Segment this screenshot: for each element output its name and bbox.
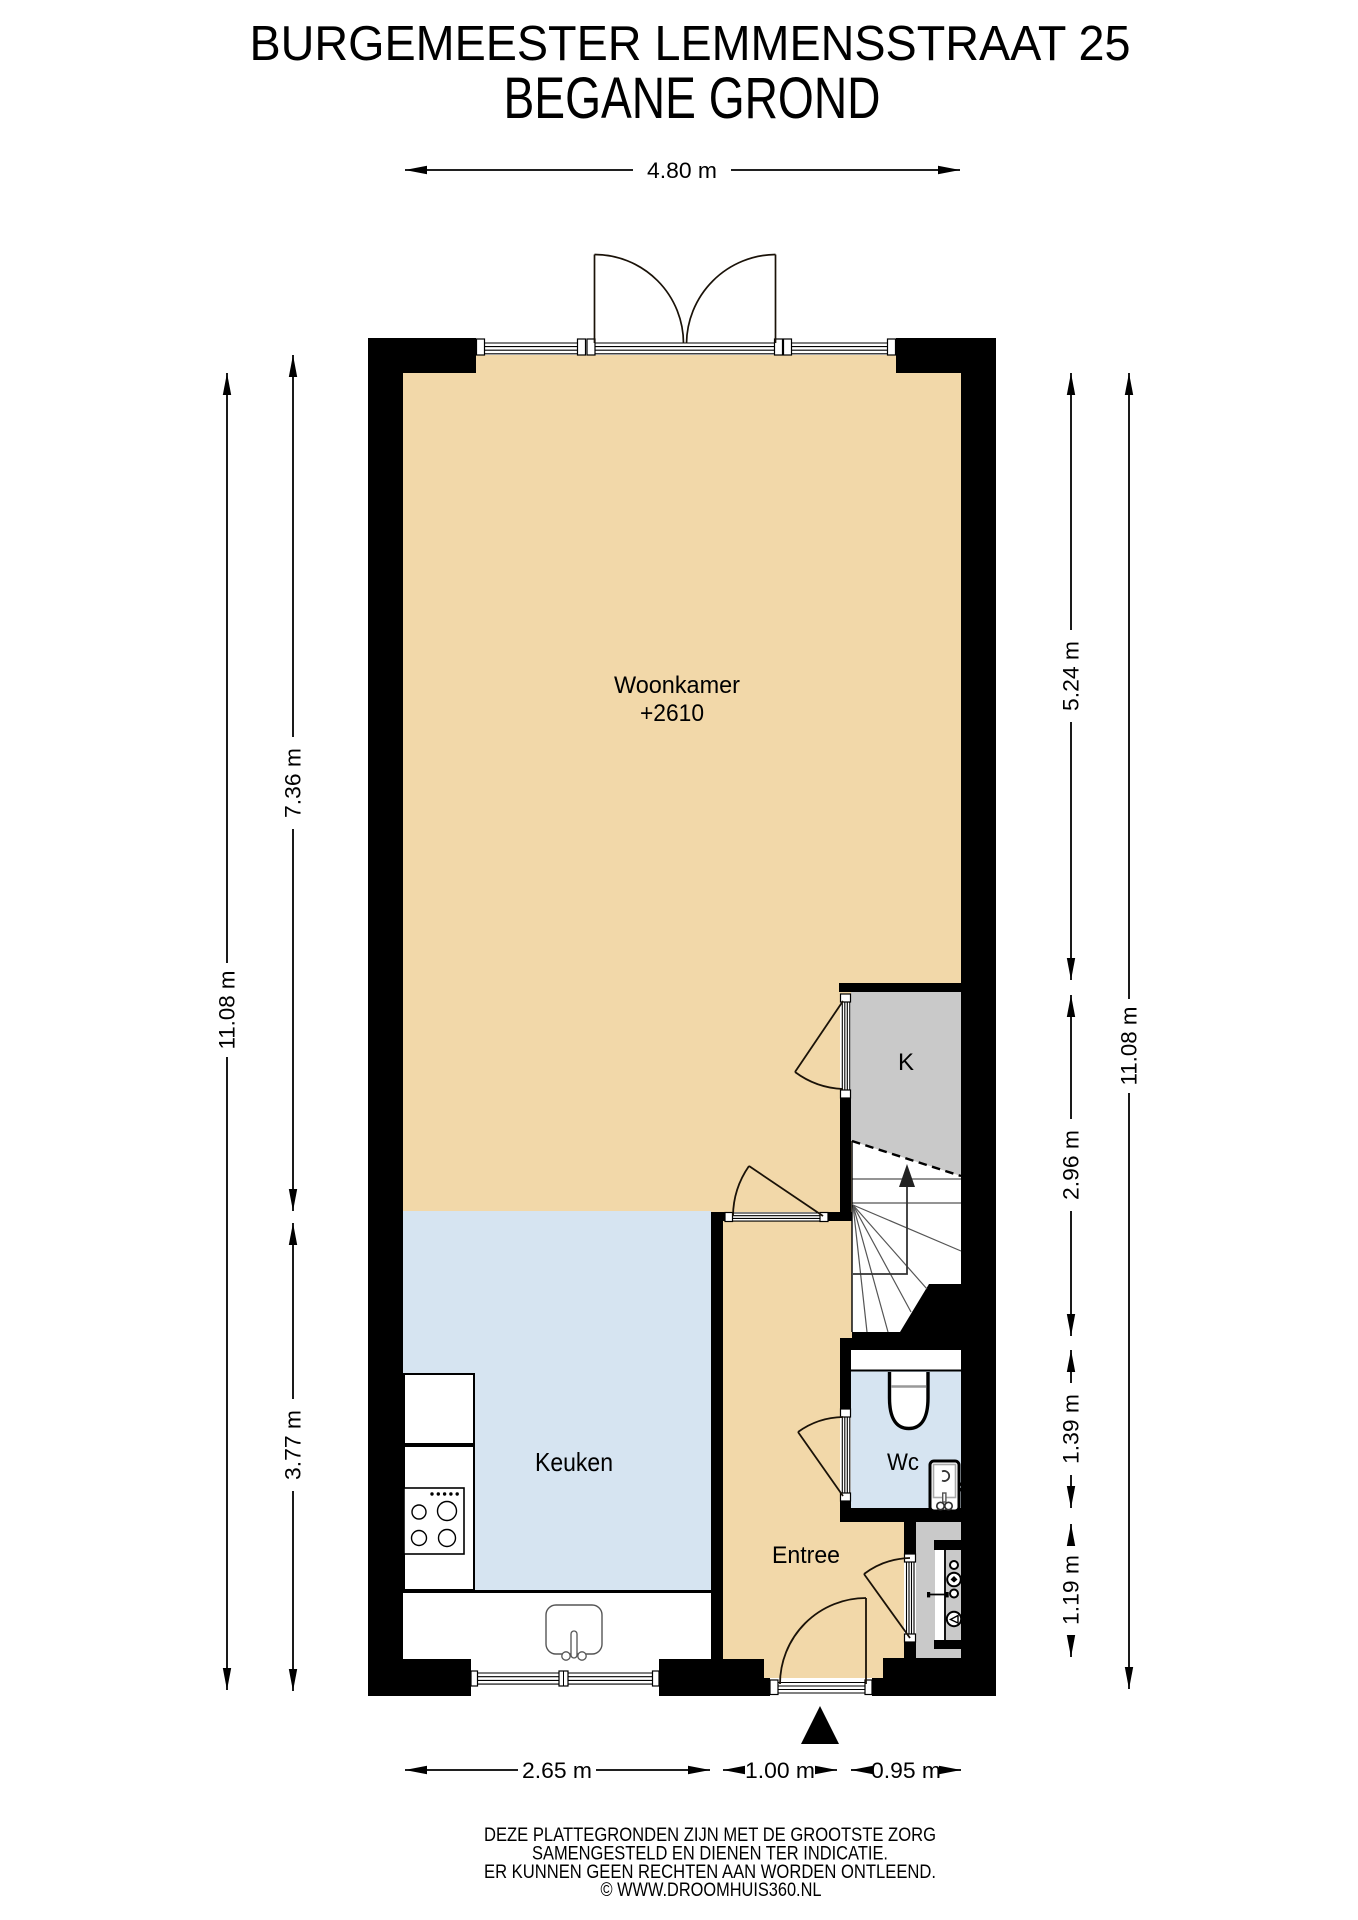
svg-text:BEGANE GROND: BEGANE GROND (504, 66, 881, 131)
svg-text:3.77 m: 3.77 m (281, 1410, 306, 1480)
svg-text:4.80 m: 4.80 m (647, 158, 717, 183)
svg-text:Keuken: Keuken (535, 1447, 613, 1477)
svg-text:11.08 m: 11.08 m (1117, 1007, 1142, 1086)
svg-text:2.96 m: 2.96 m (1059, 1130, 1084, 1200)
svg-text:1.00 m: 1.00 m (745, 1758, 815, 1783)
svg-text:BURGEMEESTER LEMMENSSTRAAT 25: BURGEMEESTER LEMMENSSTRAAT 25 (250, 17, 1131, 71)
svg-text:Wc: Wc (887, 1449, 919, 1476)
svg-text:1.39 m: 1.39 m (1059, 1394, 1084, 1464)
svg-text:0.95 m: 0.95 m (871, 1758, 941, 1783)
svg-text:2.65 m: 2.65 m (522, 1758, 592, 1783)
svg-text:5.24 m: 5.24 m (1059, 641, 1084, 711)
svg-text:11.08 m: 11.08 m (215, 971, 240, 1050)
svg-text:© WWW.DROOMHUIS360.NL: © WWW.DROOMHUIS360.NL (601, 1880, 822, 1901)
svg-text:K: K (898, 1049, 914, 1076)
svg-text:Entree: Entree (772, 1542, 840, 1569)
svg-text:7.36 m: 7.36 m (281, 748, 306, 818)
svg-text:+2610: +2610 (640, 700, 704, 727)
svg-text:1.19 m: 1.19 m (1059, 1555, 1084, 1625)
svg-text:Woonkamer: Woonkamer (614, 672, 740, 699)
